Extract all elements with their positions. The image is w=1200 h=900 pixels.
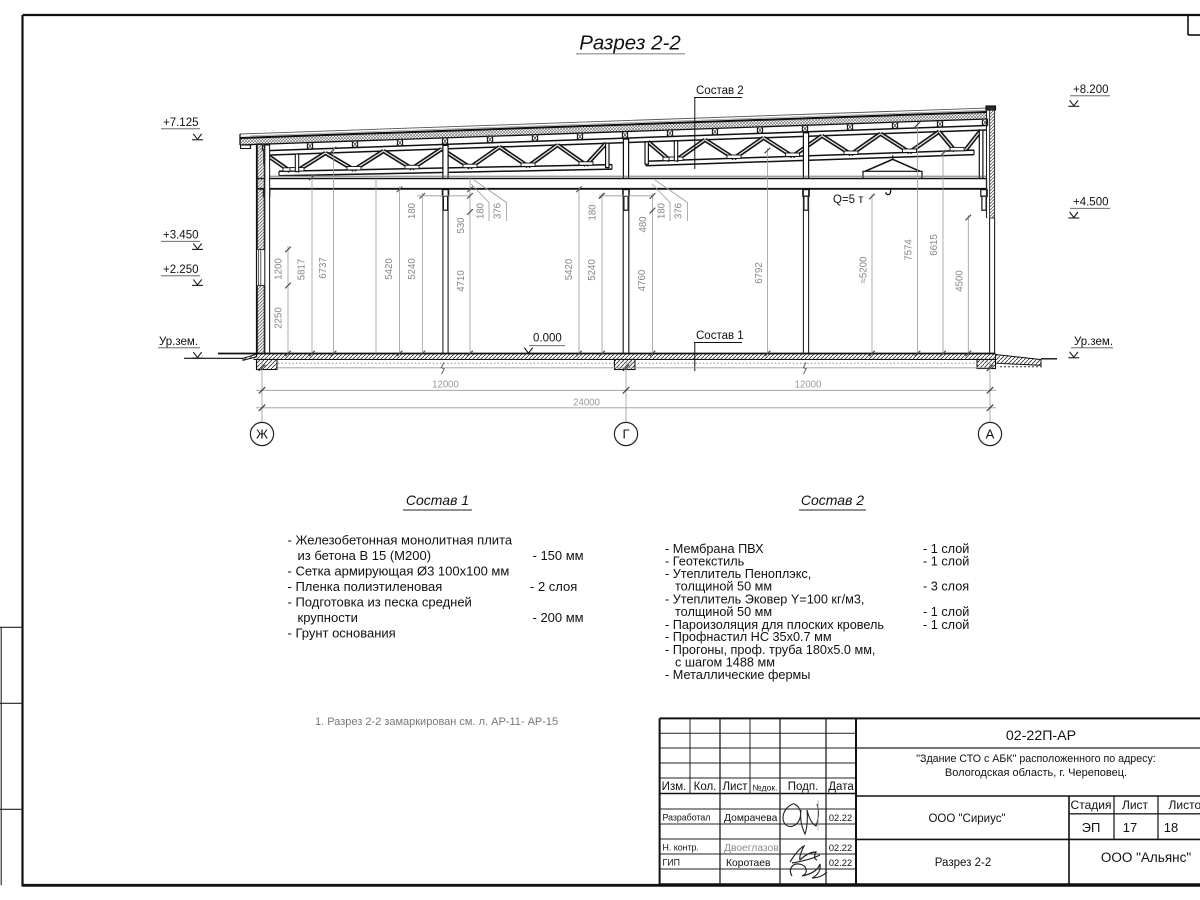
- svg-text:Вологодская область, г. Черепо: Вологодская область, г. Череповец.: [945, 767, 1127, 779]
- svg-text:- Металлические фермы: - Металлические фермы: [665, 668, 810, 682]
- svg-text:+3.450: +3.450: [163, 230, 199, 242]
- svg-text:02-22П-АР: 02-22П-АР: [1006, 728, 1076, 744]
- svg-text:- Профнастил НС 35х0.7 мм: - Профнастил НС 35х0.7 мм: [665, 630, 832, 644]
- svg-text:Коротаев: Коротаев: [726, 858, 771, 869]
- svg-text:480: 480: [638, 216, 649, 232]
- svg-text:Q=5 т: Q=5 т: [833, 194, 864, 206]
- svg-text:крупности: крупности: [298, 610, 358, 625]
- svg-text:- Грунт основания: - Грунт основания: [288, 626, 396, 641]
- svg-text:- 1 слой: - 1 слой: [923, 618, 969, 632]
- svg-text:02.22: 02.22: [829, 813, 852, 823]
- svg-text:Кол.: Кол.: [694, 781, 717, 793]
- svg-text:Двоеглазов: Двоеглазов: [724, 843, 779, 854]
- svg-text:2250: 2250: [273, 307, 284, 329]
- svg-text:Разработал: Разработал: [663, 813, 711, 823]
- svg-text:4500: 4500: [954, 270, 965, 292]
- svg-text:- Подготовка из песка средней: - Подготовка из песка средней: [288, 595, 472, 610]
- svg-text:12000: 12000: [795, 379, 822, 390]
- svg-text:7574: 7574: [903, 239, 914, 261]
- svg-text:Стадия: Стадия: [1071, 798, 1112, 812]
- svg-text:ООО "Сириус": ООО "Сириус": [928, 813, 1005, 825]
- svg-text:5240: 5240: [587, 259, 598, 281]
- svg-text:Лист: Лист: [723, 781, 749, 793]
- svg-text:Изм.: Изм.: [662, 781, 687, 793]
- svg-text:0.000: 0.000: [533, 333, 562, 345]
- svg-text:толщиной 50 мм: толщиной 50 мм: [675, 580, 772, 594]
- svg-text:Состав 1: Состав 1: [406, 492, 469, 508]
- svg-text:180: 180: [587, 204, 598, 220]
- svg-text:18: 18: [1164, 820, 1178, 835]
- svg-text:+7.125: +7.125: [163, 117, 199, 129]
- svg-text:180: 180: [656, 203, 667, 219]
- svg-text:1200: 1200: [273, 258, 284, 280]
- svg-text:530: 530: [456, 217, 467, 233]
- svg-text:ЭП: ЭП: [1082, 820, 1101, 835]
- svg-text:4710: 4710: [456, 270, 467, 292]
- svg-text:12000: 12000: [432, 379, 459, 390]
- svg-text:Состав 2: Состав 2: [696, 85, 744, 97]
- svg-text:- Пленка полиэтиленовая: - Пленка полиэтиленовая: [288, 579, 443, 594]
- svg-text:4760: 4760: [637, 269, 648, 291]
- svg-text:02.22: 02.22: [829, 858, 852, 868]
- svg-text:Домрачева: Домрачева: [724, 813, 778, 824]
- svg-text:ГИП: ГИП: [663, 858, 680, 868]
- svg-text:Разрез 2-2: Разрез 2-2: [579, 32, 681, 55]
- svg-text:17: 17: [1123, 820, 1137, 835]
- svg-text:Дата: Дата: [828, 781, 854, 793]
- svg-text:Ж: Ж: [256, 427, 268, 442]
- svg-text:Лист: Лист: [1122, 798, 1149, 812]
- svg-text:Подп.: Подп.: [788, 781, 819, 793]
- svg-text:≈5200: ≈5200: [858, 256, 869, 283]
- svg-text:02.22: 02.22: [829, 843, 852, 853]
- svg-text:Разрез 2-2: Разрез 2-2: [935, 857, 991, 869]
- svg-text:Ур.зем.: Ур.зем.: [159, 336, 198, 348]
- svg-text:180: 180: [407, 203, 418, 219]
- svg-text:6737: 6737: [318, 257, 329, 279]
- svg-text:1. Разрез 2-2 замаркирован см.: 1. Разрез 2-2 замаркирован см. л. АР-11-…: [315, 716, 558, 728]
- svg-text:6615: 6615: [929, 234, 940, 256]
- svg-text:Листов: Листов: [1169, 798, 1200, 812]
- svg-text:Ур.зем.: Ур.зем.: [1074, 336, 1113, 348]
- svg-text:из бетона В 15 (М200): из бетона В 15 (М200): [298, 548, 432, 563]
- svg-text:5817: 5817: [296, 258, 307, 280]
- svg-text:- 1 слой: - 1 слой: [923, 555, 969, 569]
- svg-text:"Здание СТО с АБК" расположенн: "Здание СТО с АБК" расположенного по адр…: [916, 753, 1156, 765]
- svg-text:Н. контр.: Н. контр.: [663, 843, 699, 853]
- svg-text:- 1 слой: - 1 слой: [923, 605, 969, 619]
- svg-text:№док.: №док.: [753, 783, 778, 793]
- svg-text:180: 180: [475, 203, 486, 219]
- svg-text:ООО "Альянс": ООО "Альянс": [1101, 850, 1191, 865]
- svg-text:Г: Г: [622, 427, 629, 442]
- svg-text:5420: 5420: [384, 258, 395, 280]
- svg-text:+8.200: +8.200: [1073, 84, 1109, 96]
- svg-text:5240: 5240: [406, 258, 417, 280]
- svg-text:- 200 мм: - 200 мм: [533, 610, 584, 625]
- svg-text:- 2 слоя: - 2 слоя: [530, 579, 577, 594]
- svg-text:- Сетка армирующая Ø3 100х100: - Сетка армирующая Ø3 100х100 мм: [288, 564, 510, 579]
- svg-text:376: 376: [673, 203, 684, 219]
- svg-text:Состав 2: Состав 2: [801, 492, 864, 508]
- svg-text:5420: 5420: [564, 258, 575, 280]
- svg-text:- 150 мм: - 150 мм: [533, 548, 584, 563]
- svg-text:толщиной 50 мм: толщиной 50 мм: [675, 605, 772, 619]
- svg-text:А: А: [986, 427, 995, 442]
- svg-text:24000: 24000: [573, 397, 600, 408]
- svg-text:- Железобетонная монолитная п: - Железобетонная монолитная плита: [288, 533, 513, 548]
- svg-text:+4.500: +4.500: [1073, 197, 1109, 209]
- svg-text:6792: 6792: [754, 262, 765, 284]
- svg-text:Состав 1: Состав 1: [696, 330, 744, 342]
- svg-text:- 3 слоя: - 3 слоя: [923, 580, 969, 594]
- svg-text:376: 376: [492, 203, 503, 219]
- svg-text:+2.250: +2.250: [163, 264, 199, 276]
